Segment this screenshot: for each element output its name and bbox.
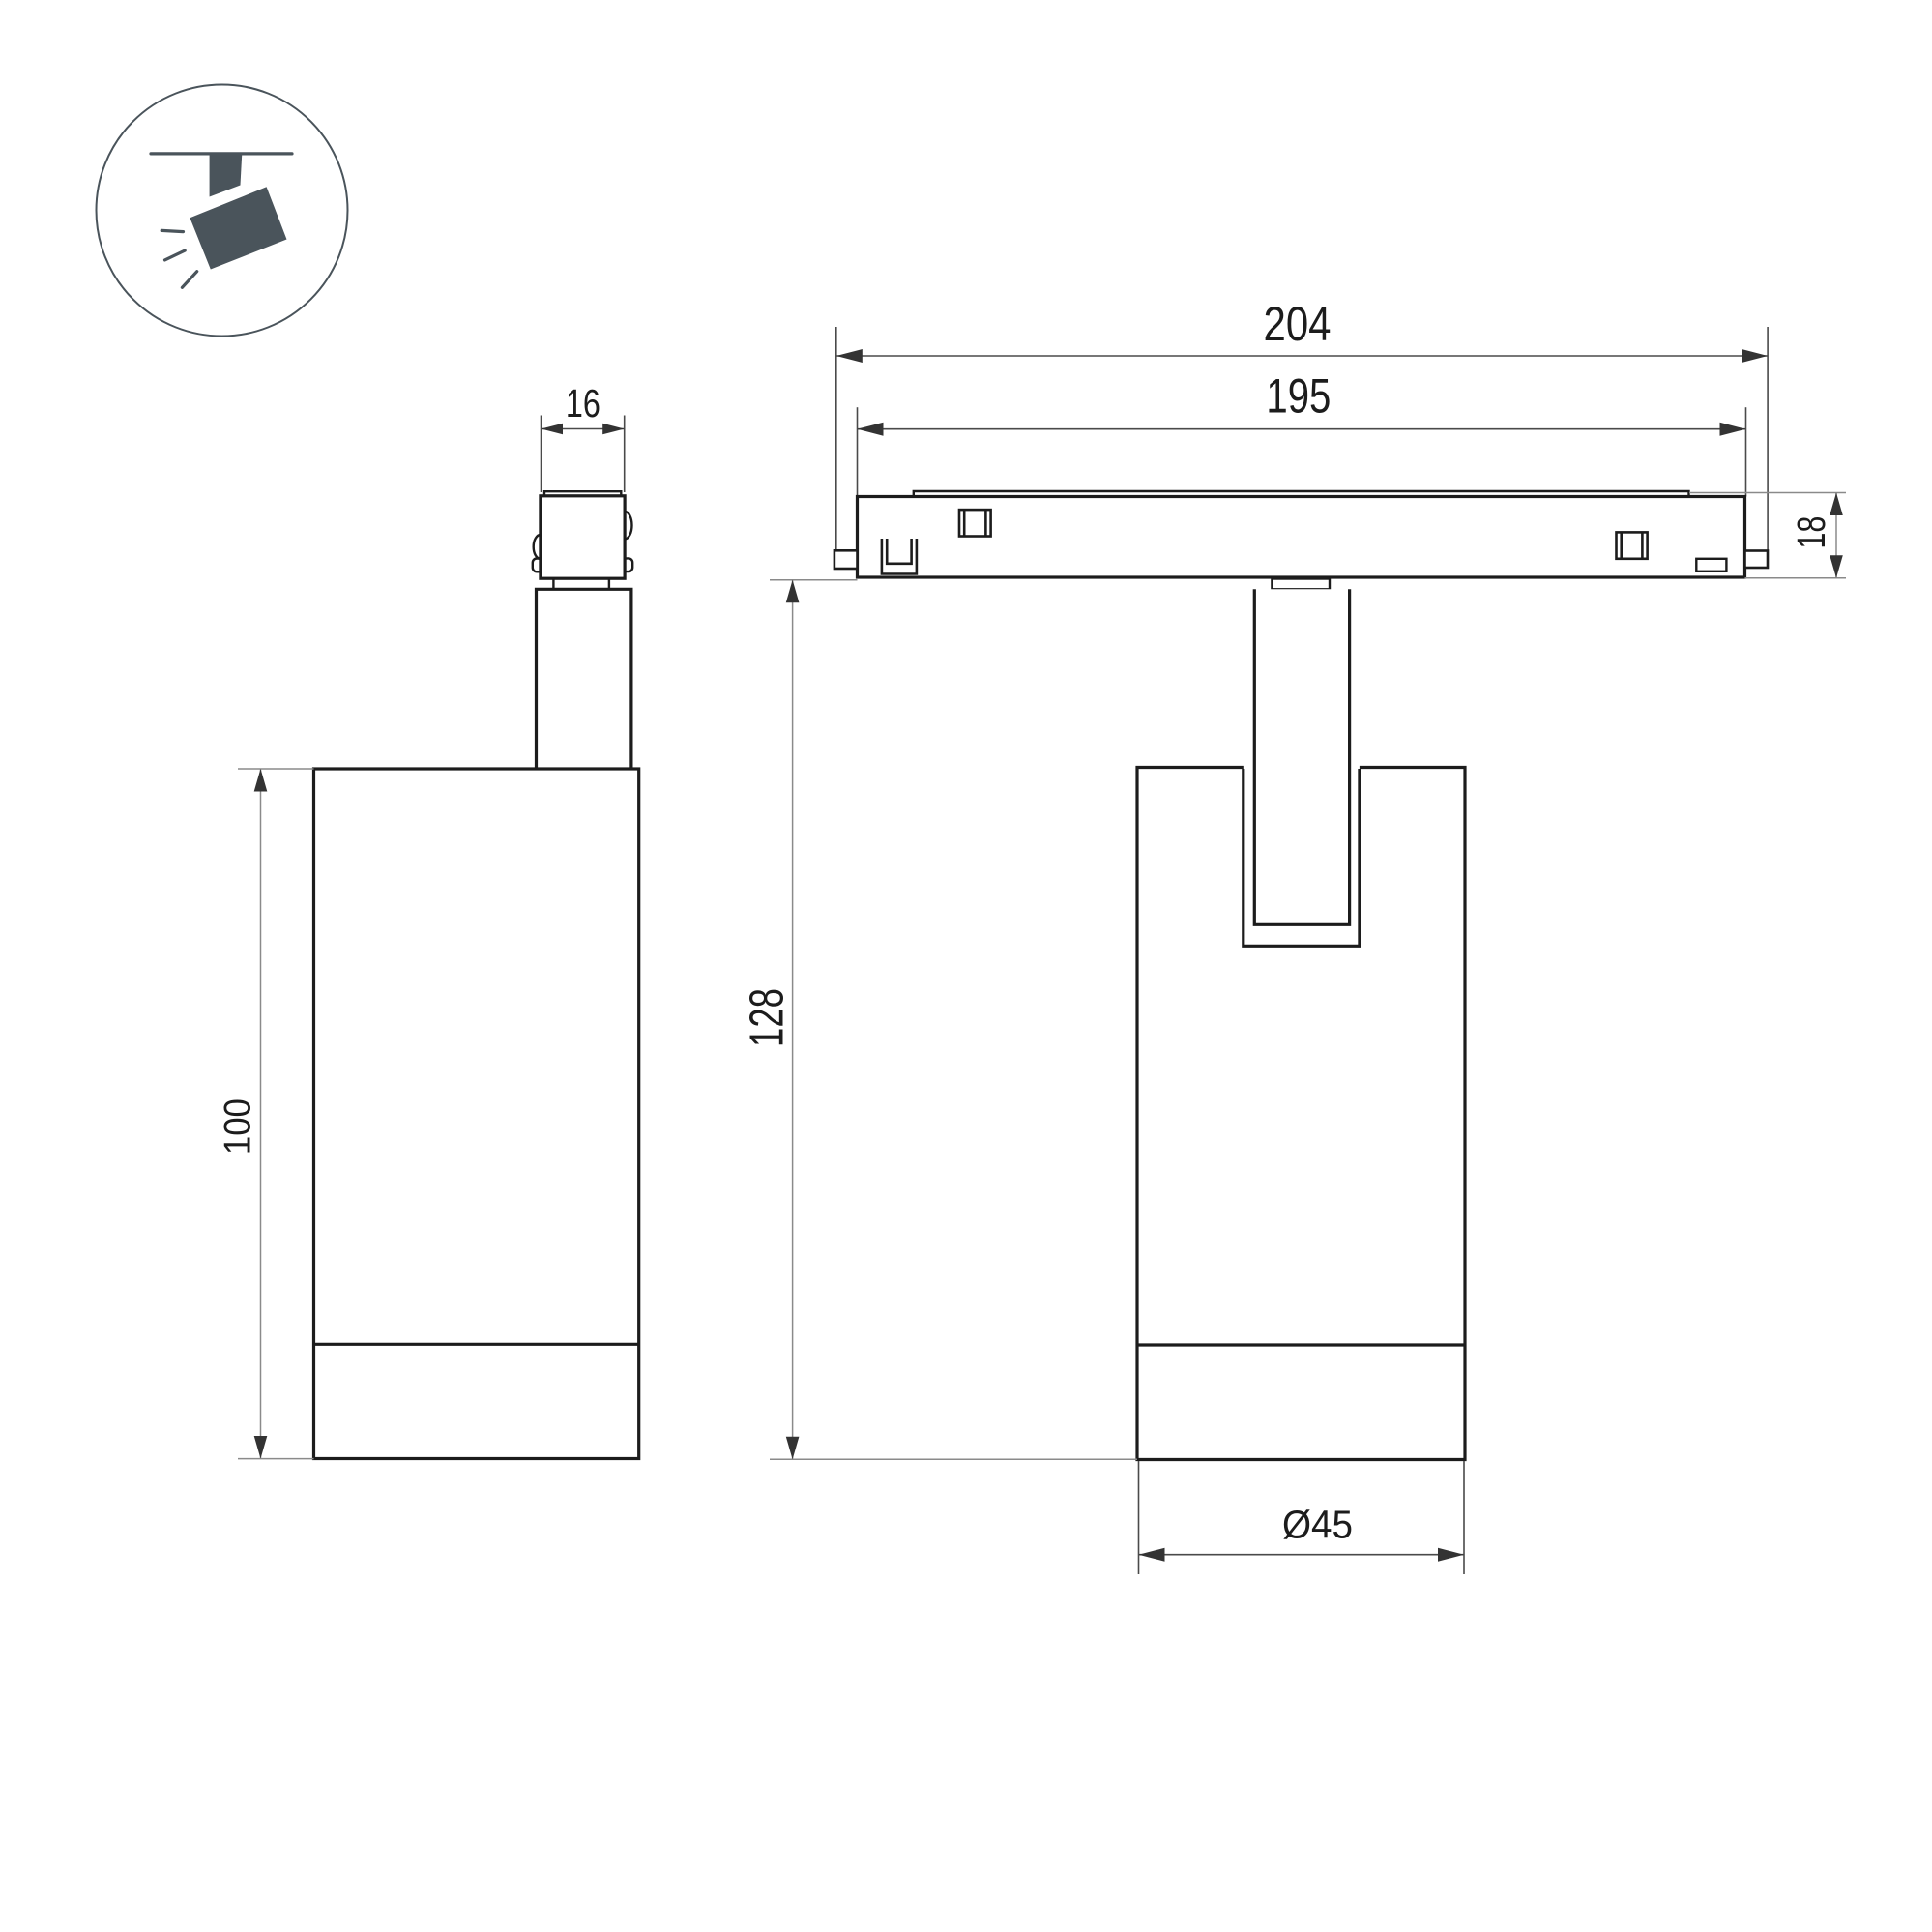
svg-text:195: 195 bbox=[1266, 368, 1331, 423]
svg-text:204: 204 bbox=[1264, 297, 1332, 351]
svg-text:Ø45: Ø45 bbox=[1282, 1503, 1353, 1547]
svg-text:128: 128 bbox=[741, 988, 793, 1047]
svg-text:100: 100 bbox=[217, 1098, 258, 1155]
svg-text:16: 16 bbox=[566, 381, 600, 425]
svg-text:18: 18 bbox=[1789, 516, 1833, 549]
